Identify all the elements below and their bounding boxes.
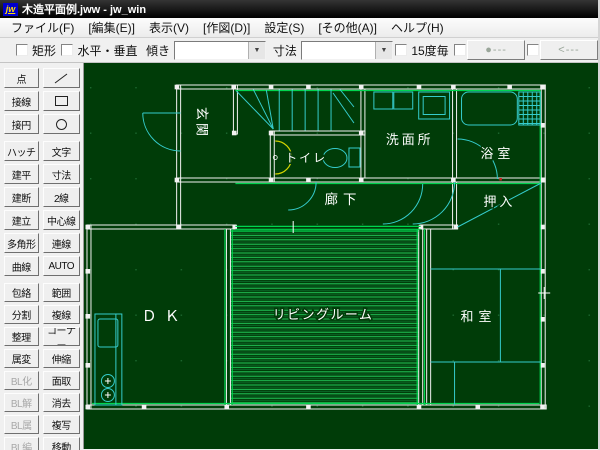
rect-checkbox-label: 矩形 bbox=[32, 42, 56, 59]
tool-block-attribute: BL属 bbox=[4, 415, 39, 434]
toolbar: 矩形 水平・垂直 傾き ▼ 寸法 ▼ 15度毎 ●--- <--- bbox=[0, 38, 598, 63]
tool-block-create: BL化 bbox=[4, 371, 39, 390]
drawing-canvas-area: 玄関 トイレ 洗面所 浴室 廊下 押入 ＤＫ リビングルーム 和室 bbox=[84, 63, 598, 449]
title-bar: jw 木造平面例.jww - jw_win bbox=[0, 0, 598, 18]
tool-text[interactable]: 文字 bbox=[43, 141, 80, 161]
tool-extend[interactable]: 伸縮 bbox=[43, 349, 80, 368]
tool-copy[interactable]: 複写 bbox=[43, 415, 80, 434]
tool-attribute-change[interactable]: 属変 bbox=[4, 349, 39, 368]
tool-envelope[interactable]: 包絡 bbox=[4, 283, 39, 302]
tool-corner[interactable]: コーナー bbox=[43, 327, 80, 346]
floor-plan-canvas[interactable]: 玄関 トイレ 洗面所 浴室 廊下 押入 ＤＫ リビングルーム 和室 bbox=[84, 63, 598, 449]
window-title: 木造平面例.jww - jw_win bbox=[22, 1, 146, 17]
dot-line-button: ●--- bbox=[467, 40, 525, 60]
dimension-label: 寸法 bbox=[273, 42, 297, 59]
line-icon bbox=[53, 72, 69, 85]
tool-divide[interactable]: 分割 bbox=[4, 305, 39, 324]
dimension-value bbox=[302, 42, 375, 59]
chevron-down-icon[interactable]: ▼ bbox=[375, 42, 392, 59]
menu-help[interactable]: ヘルプ(H) bbox=[384, 18, 451, 37]
tool-centerline[interactable]: 中心線 bbox=[43, 210, 80, 230]
dot-line-checkbox[interactable] bbox=[454, 44, 466, 56]
tool-point[interactable]: 点 bbox=[4, 68, 39, 88]
menu-settings[interactable]: 設定(S) bbox=[257, 18, 311, 37]
room-label-genkan: 玄関 bbox=[195, 107, 210, 139]
snap-point-red bbox=[499, 178, 501, 181]
tool-circle[interactable] bbox=[43, 114, 80, 134]
incline-value bbox=[175, 42, 248, 59]
arrow-line-button: <--- bbox=[540, 40, 598, 60]
menu-file[interactable]: ファイル(F) bbox=[4, 18, 81, 37]
chevron-down-icon[interactable]: ▼ bbox=[248, 42, 265, 59]
tool-hatch[interactable]: ハッチ bbox=[4, 141, 39, 161]
tool-range[interactable]: 範囲 bbox=[43, 283, 80, 302]
rectangle-icon bbox=[55, 96, 68, 106]
tool-polygon[interactable]: 多角形 bbox=[4, 233, 39, 253]
tool-chamfer[interactable]: 面取 bbox=[43, 371, 80, 390]
incline-combobox[interactable]: ▼ bbox=[174, 41, 266, 60]
rect-checkbox[interactable] bbox=[16, 44, 28, 56]
tool-rectangle[interactable] bbox=[43, 91, 80, 111]
tool-building-elevation[interactable]: 建立 bbox=[4, 210, 39, 230]
tool-auto[interactable]: AUTO bbox=[43, 256, 80, 276]
tool-block-edit: BL編 bbox=[4, 437, 39, 450]
menu-view[interactable]: 表示(V) bbox=[142, 18, 196, 37]
menu-other[interactable]: [その他(A)] bbox=[311, 18, 384, 37]
tool-erase[interactable]: 消去 bbox=[43, 393, 80, 412]
dimension-combobox[interactable]: ▼ bbox=[301, 41, 393, 60]
room-label-toilet: トイレ bbox=[285, 151, 327, 165]
tool-offset[interactable]: 複線 bbox=[43, 305, 80, 324]
deg15-checkbox[interactable] bbox=[395, 44, 407, 56]
menu-draw[interactable]: [作図(D)] bbox=[196, 18, 257, 37]
room-label-living-room: リビングルーム bbox=[273, 307, 374, 322]
tool-sidebar: 点 接線 接円 ハッチ 文字 建平 寸法 建断 2線 bbox=[0, 63, 84, 449]
room-label-dk: ＤＫ bbox=[142, 308, 188, 325]
tool-polyline[interactable]: 連線 bbox=[43, 233, 80, 253]
app-window: jw 木造平面例.jww - jw_win ファイル(F) [編集(E)] 表示… bbox=[0, 0, 600, 450]
tool-block-explode: BL解 bbox=[4, 393, 39, 412]
arrow-line-checkbox[interactable] bbox=[527, 44, 539, 56]
room-label-closet: 押入 bbox=[483, 194, 515, 209]
tool-tidy[interactable]: 整理 bbox=[4, 327, 39, 346]
menu-bar: ファイル(F) [編集(E)] 表示(V) [作図(D)] 設定(S) [その他… bbox=[0, 18, 598, 38]
room-label-corridor: 廊下 bbox=[325, 191, 362, 207]
tool-dimension[interactable]: 寸法 bbox=[43, 164, 80, 184]
room-label-bathroom: 浴室 bbox=[480, 146, 514, 161]
circle-icon bbox=[56, 119, 67, 130]
horizontal-vertical-label: 水平・垂直 bbox=[77, 42, 137, 59]
tool-building-plan[interactable]: 建平 bbox=[4, 164, 39, 184]
tool-tangent-circle[interactable]: 接円 bbox=[4, 114, 39, 134]
tool-curve[interactable]: 曲線 bbox=[4, 256, 39, 276]
tool-move[interactable]: 移動 bbox=[43, 437, 80, 450]
tool-tangent-line[interactable]: 接線 bbox=[4, 91, 39, 111]
horizontal-vertical-checkbox[interactable] bbox=[61, 44, 73, 56]
menu-edit[interactable]: [編集(E)] bbox=[81, 18, 142, 37]
tool-building-section[interactable]: 建断 bbox=[4, 187, 39, 207]
incline-label: 傾き bbox=[146, 42, 170, 59]
deg15-label: 15度毎 bbox=[411, 42, 448, 59]
room-label-washitsu: 和室 bbox=[461, 309, 497, 324]
room-label-washroom: 洗面所 bbox=[386, 132, 434, 147]
tool-2line[interactable]: 2線 bbox=[43, 187, 80, 207]
app-icon: jw bbox=[3, 3, 18, 16]
tool-line[interactable] bbox=[43, 68, 80, 88]
